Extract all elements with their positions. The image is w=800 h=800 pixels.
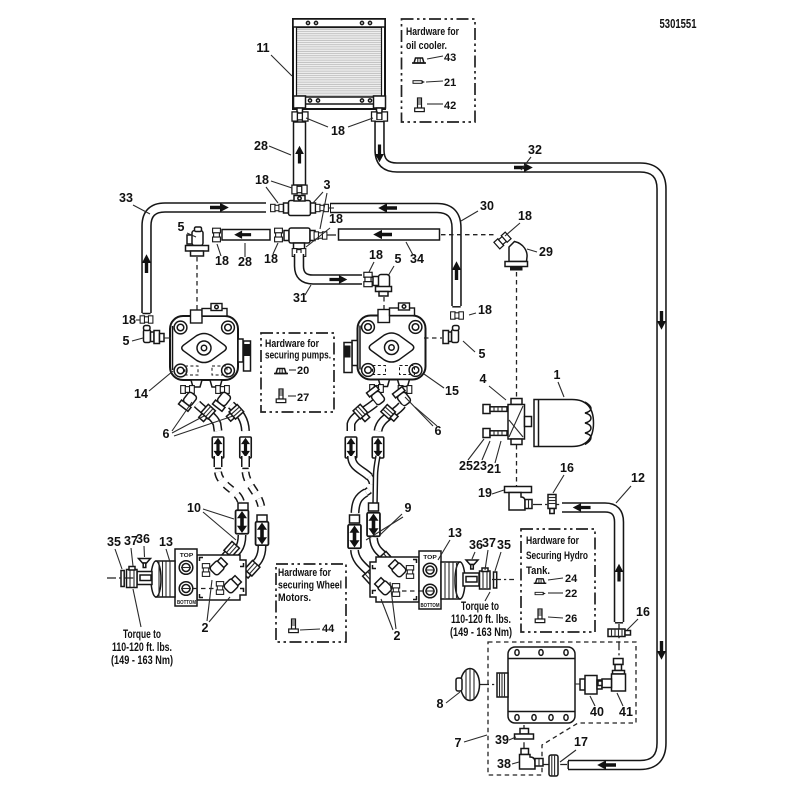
svg-text:5: 5 [395, 252, 402, 266]
svg-text:36: 36 [136, 532, 150, 546]
svg-text:TOP: TOP [180, 553, 194, 559]
svg-text:39: 39 [495, 733, 509, 747]
svg-text:16: 16 [636, 605, 650, 619]
svg-text:TOP: TOP [423, 555, 437, 561]
svg-text:15: 15 [445, 384, 459, 398]
svg-text:28: 28 [254, 139, 268, 153]
svg-text:13: 13 [448, 526, 462, 540]
svg-text:13: 13 [159, 535, 173, 549]
svg-text:5: 5 [123, 334, 130, 348]
svg-text:43: 43 [444, 52, 456, 64]
svg-text:12: 12 [631, 471, 645, 485]
svg-text:Hardware for: Hardware for [265, 338, 320, 350]
svg-text:5: 5 [178, 220, 185, 234]
svg-text:2: 2 [394, 629, 401, 643]
svg-text:6: 6 [435, 424, 442, 438]
svg-text:securing pumps.: securing pumps. [265, 350, 331, 362]
svg-text:11: 11 [256, 41, 269, 55]
svg-text:37: 37 [482, 536, 496, 550]
svg-text:25: 25 [459, 459, 473, 473]
svg-text:Motors.: Motors. [278, 592, 311, 604]
svg-text:(149 - 163 Nm): (149 - 163 Nm) [111, 655, 173, 667]
svg-text:20: 20 [297, 365, 309, 377]
svg-text:5: 5 [479, 347, 486, 361]
svg-text:10: 10 [187, 501, 201, 515]
svg-text:7: 7 [455, 736, 462, 750]
svg-text:32: 32 [528, 143, 542, 157]
svg-text:Hardware for: Hardware for [406, 26, 460, 38]
svg-text:(149 - 163 Nm): (149 - 163 Nm) [450, 627, 512, 639]
svg-text:23: 23 [473, 459, 487, 473]
svg-text:BOTTOM: BOTTOM [177, 600, 196, 606]
svg-text:oil cooler.: oil cooler. [406, 40, 447, 52]
svg-text:21: 21 [444, 77, 456, 89]
svg-text:16: 16 [560, 461, 574, 475]
svg-text:27: 27 [297, 392, 309, 404]
svg-text:31: 31 [293, 291, 307, 305]
svg-text:18: 18 [329, 212, 343, 226]
svg-text:21: 21 [487, 462, 501, 476]
svg-text:44: 44 [322, 623, 335, 635]
svg-text:26: 26 [565, 613, 577, 625]
svg-text:42: 42 [444, 100, 456, 112]
svg-text:18: 18 [215, 254, 229, 268]
svg-text:4: 4 [480, 372, 487, 386]
svg-text:3: 3 [324, 178, 331, 192]
svg-text:110-120 ft. lbs.: 110-120 ft. lbs. [451, 614, 511, 626]
svg-text:36: 36 [469, 538, 483, 552]
svg-text:securing Wheel: securing Wheel [278, 580, 342, 592]
svg-text:9: 9 [405, 501, 412, 515]
svg-text:Hardware for: Hardware for [278, 567, 332, 579]
svg-text:38: 38 [497, 757, 511, 771]
svg-text:6: 6 [163, 427, 170, 441]
svg-text:2: 2 [202, 621, 209, 635]
svg-text:BOTTOM: BOTTOM [421, 603, 440, 609]
svg-text:Securing Hydro: Securing Hydro [526, 550, 588, 562]
svg-text:30: 30 [480, 199, 494, 213]
svg-text:1: 1 [554, 368, 561, 382]
svg-text:35: 35 [107, 535, 121, 549]
svg-text:Torque to: Torque to [123, 629, 161, 641]
svg-text:110-120 ft. lbs.: 110-120 ft. lbs. [112, 642, 172, 654]
svg-text:24: 24 [565, 573, 578, 585]
svg-text:29: 29 [539, 245, 553, 259]
svg-text:14: 14 [134, 387, 148, 401]
svg-text:18: 18 [518, 209, 532, 223]
svg-text:18: 18 [331, 124, 345, 138]
svg-text:Hardware for: Hardware for [526, 535, 580, 547]
svg-text:22: 22 [565, 588, 577, 600]
svg-text:35: 35 [497, 538, 511, 552]
svg-text:28: 28 [238, 255, 252, 269]
svg-text:19: 19 [478, 486, 492, 500]
svg-text:40: 40 [590, 705, 604, 719]
svg-text:8: 8 [437, 697, 444, 711]
svg-text:33: 33 [119, 191, 133, 205]
svg-text:5301551: 5301551 [660, 17, 697, 31]
svg-text:17: 17 [574, 735, 588, 749]
svg-text:Torque to: Torque to [461, 601, 499, 613]
svg-text:18: 18 [122, 313, 136, 327]
svg-text:18: 18 [255, 173, 269, 187]
svg-text:18: 18 [369, 248, 383, 262]
svg-text:41: 41 [619, 705, 633, 719]
svg-text:Tank.: Tank. [526, 565, 550, 577]
svg-text:18: 18 [478, 303, 492, 317]
svg-text:18: 18 [264, 252, 278, 266]
